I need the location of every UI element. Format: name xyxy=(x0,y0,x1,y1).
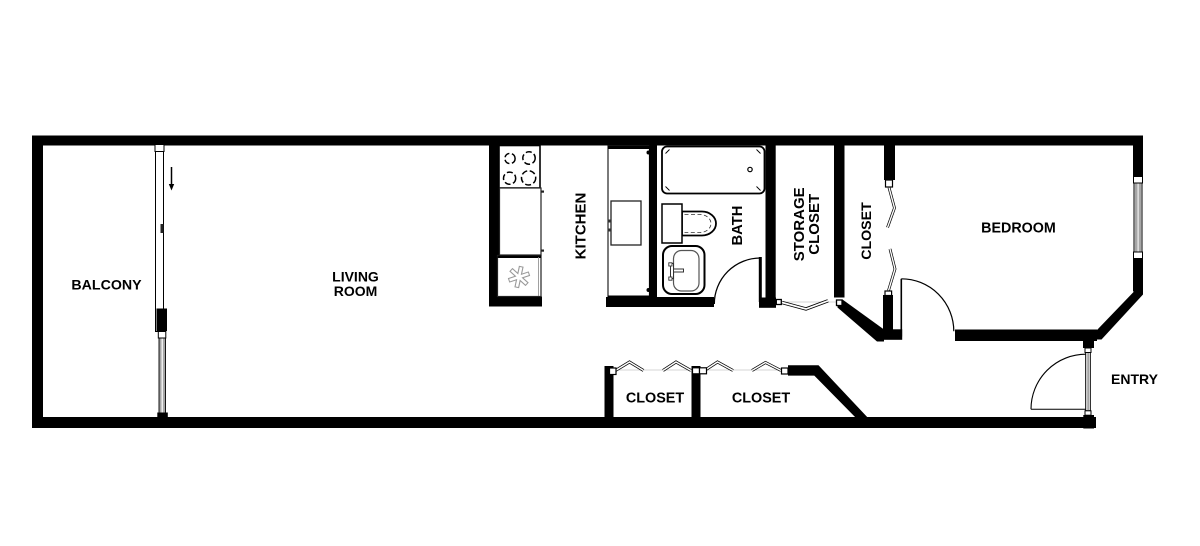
svg-text:CLOSET: CLOSET xyxy=(732,391,791,407)
svg-text:STORAGECLOSET: STORAGECLOSET xyxy=(791,187,823,261)
svg-text:BALCONY: BALCONY xyxy=(71,278,142,294)
svg-text:ROOM: ROOM xyxy=(334,283,378,299)
svg-text:BATH: BATH xyxy=(730,206,746,246)
svg-text:BEDROOM: BEDROOM xyxy=(981,221,1056,237)
svg-text:ENTRY: ENTRY xyxy=(1111,371,1159,387)
svg-text:KITCHEN: KITCHEN xyxy=(573,193,590,260)
svg-text:CLOSET: CLOSET xyxy=(859,202,875,260)
svg-text:CLOSET: CLOSET xyxy=(626,391,685,407)
